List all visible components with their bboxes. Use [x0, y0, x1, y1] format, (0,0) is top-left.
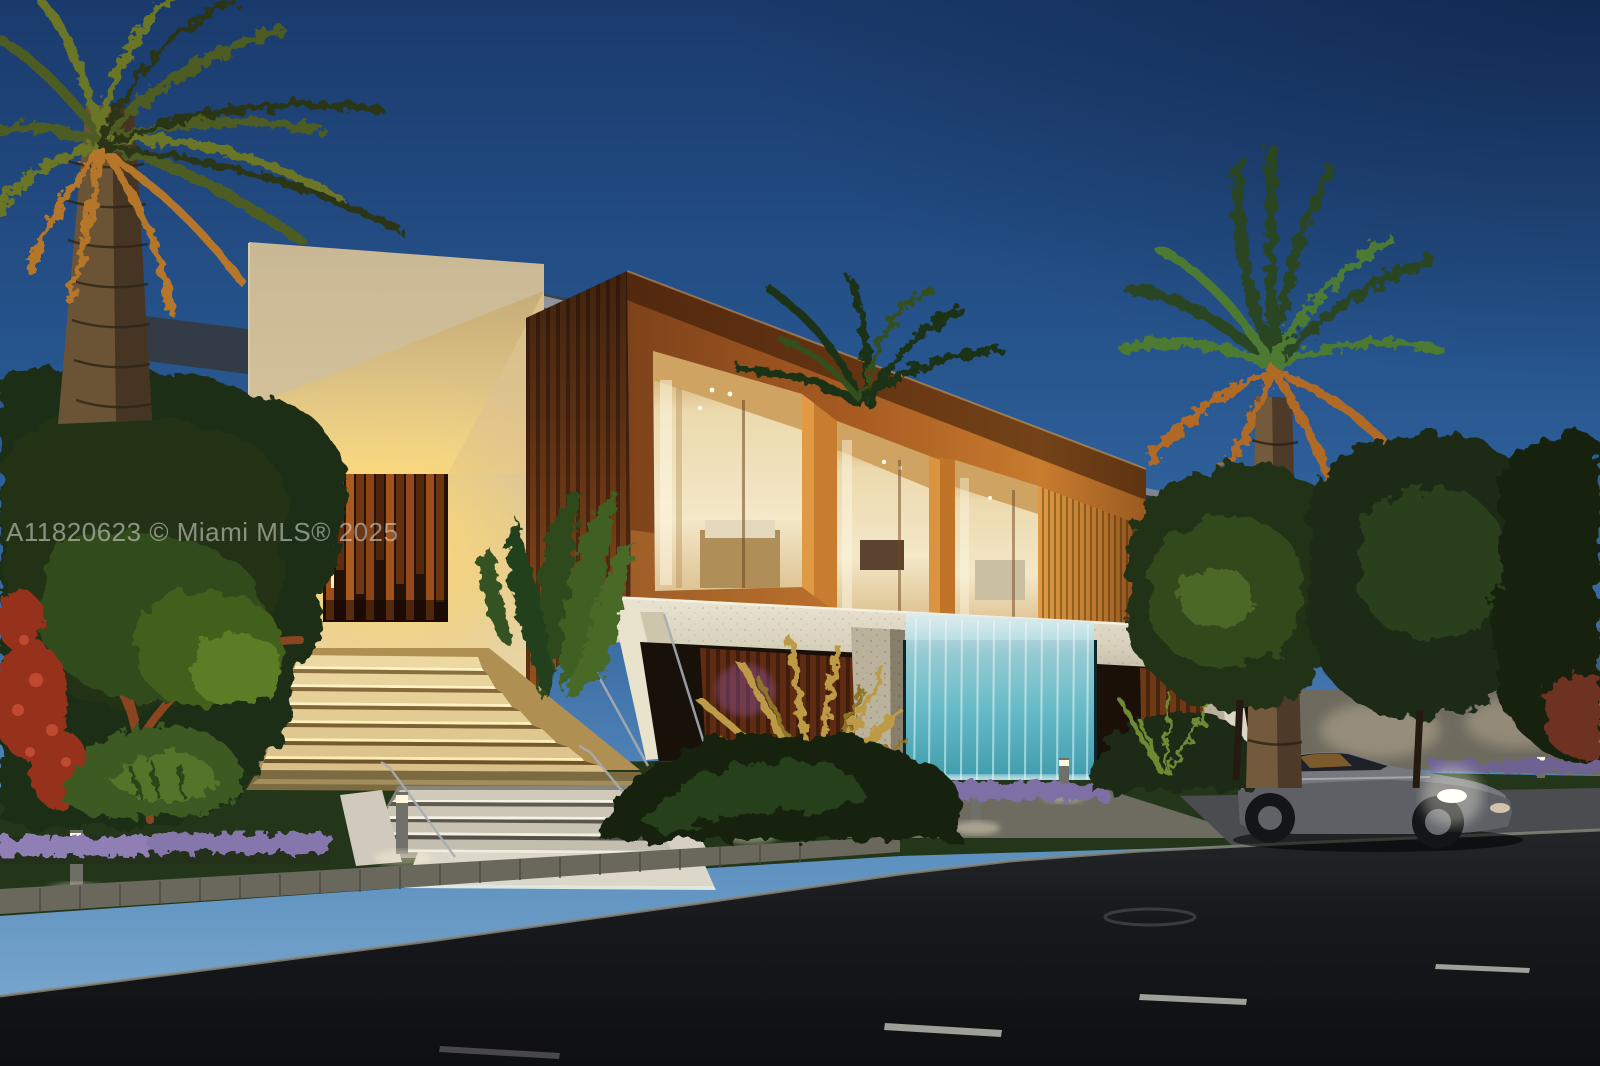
svg-text:A11820623 © Miami MLS® 2025: A11820623 © Miami MLS® 2025 — [6, 517, 398, 547]
